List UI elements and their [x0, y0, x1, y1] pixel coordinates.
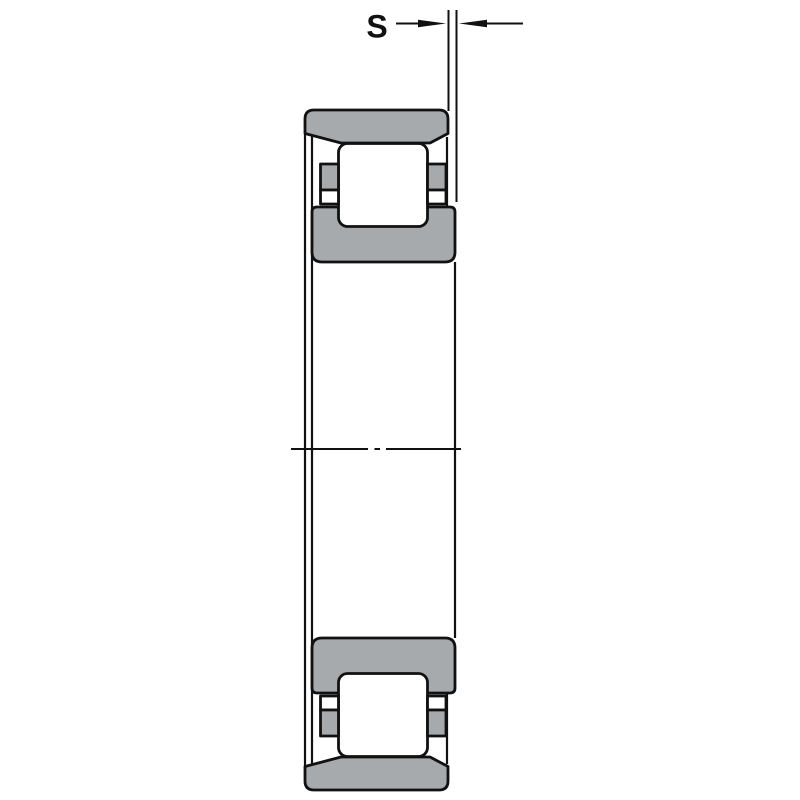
cage-bottom-left-prong	[321, 696, 339, 710]
cage-bottom-right-prong	[428, 696, 447, 710]
cage-top-left-prong	[321, 190, 339, 204]
cage-top-right-prong	[428, 190, 447, 204]
dimension-s-label: S	[366, 9, 387, 45]
bottom-half-section	[305, 638, 455, 790]
outer-ring-top-section	[305, 110, 448, 143]
bearing-diagram-canvas: S	[0, 0, 800, 800]
cage-top-right-bar	[428, 164, 447, 190]
bearing-cross-section-diagram: S	[0, 0, 800, 800]
cage-top-left-bar	[321, 164, 339, 190]
outer-ring-bottom-section	[305, 757, 448, 790]
arrow-left-icon	[459, 20, 487, 27]
arrow-right-icon	[418, 20, 446, 27]
roller-top	[339, 144, 428, 227]
roller-bottom	[339, 674, 428, 757]
cage-bottom-left-bar	[321, 710, 339, 736]
top-half-section	[305, 110, 455, 262]
cage-bottom-right-bar	[428, 710, 447, 736]
